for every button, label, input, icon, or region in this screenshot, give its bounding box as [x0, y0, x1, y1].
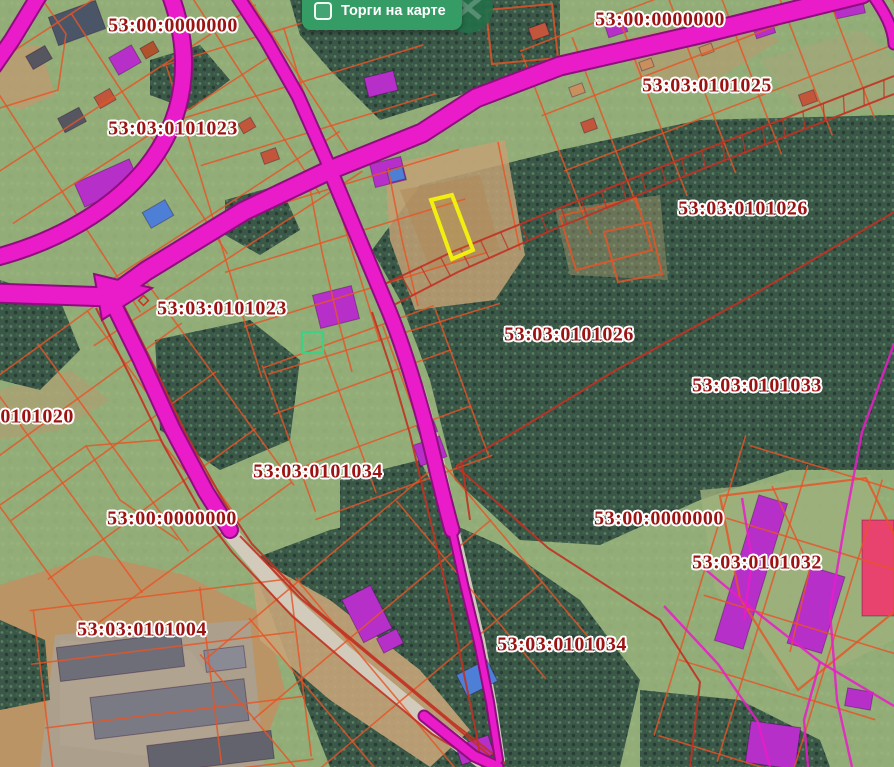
cadastral-map-app: 53:00:000000053:03:010102353:00:00000005…	[0, 0, 894, 767]
cadastral-map-canvas[interactable]	[0, 0, 894, 767]
green-parcel-highlight	[302, 332, 323, 353]
checkbox-icon[interactable]	[314, 2, 332, 20]
auctions-on-map-label: Торги на карте	[341, 3, 446, 19]
auctions-on-map-button[interactable]: Торги на карте	[302, 0, 462, 30]
